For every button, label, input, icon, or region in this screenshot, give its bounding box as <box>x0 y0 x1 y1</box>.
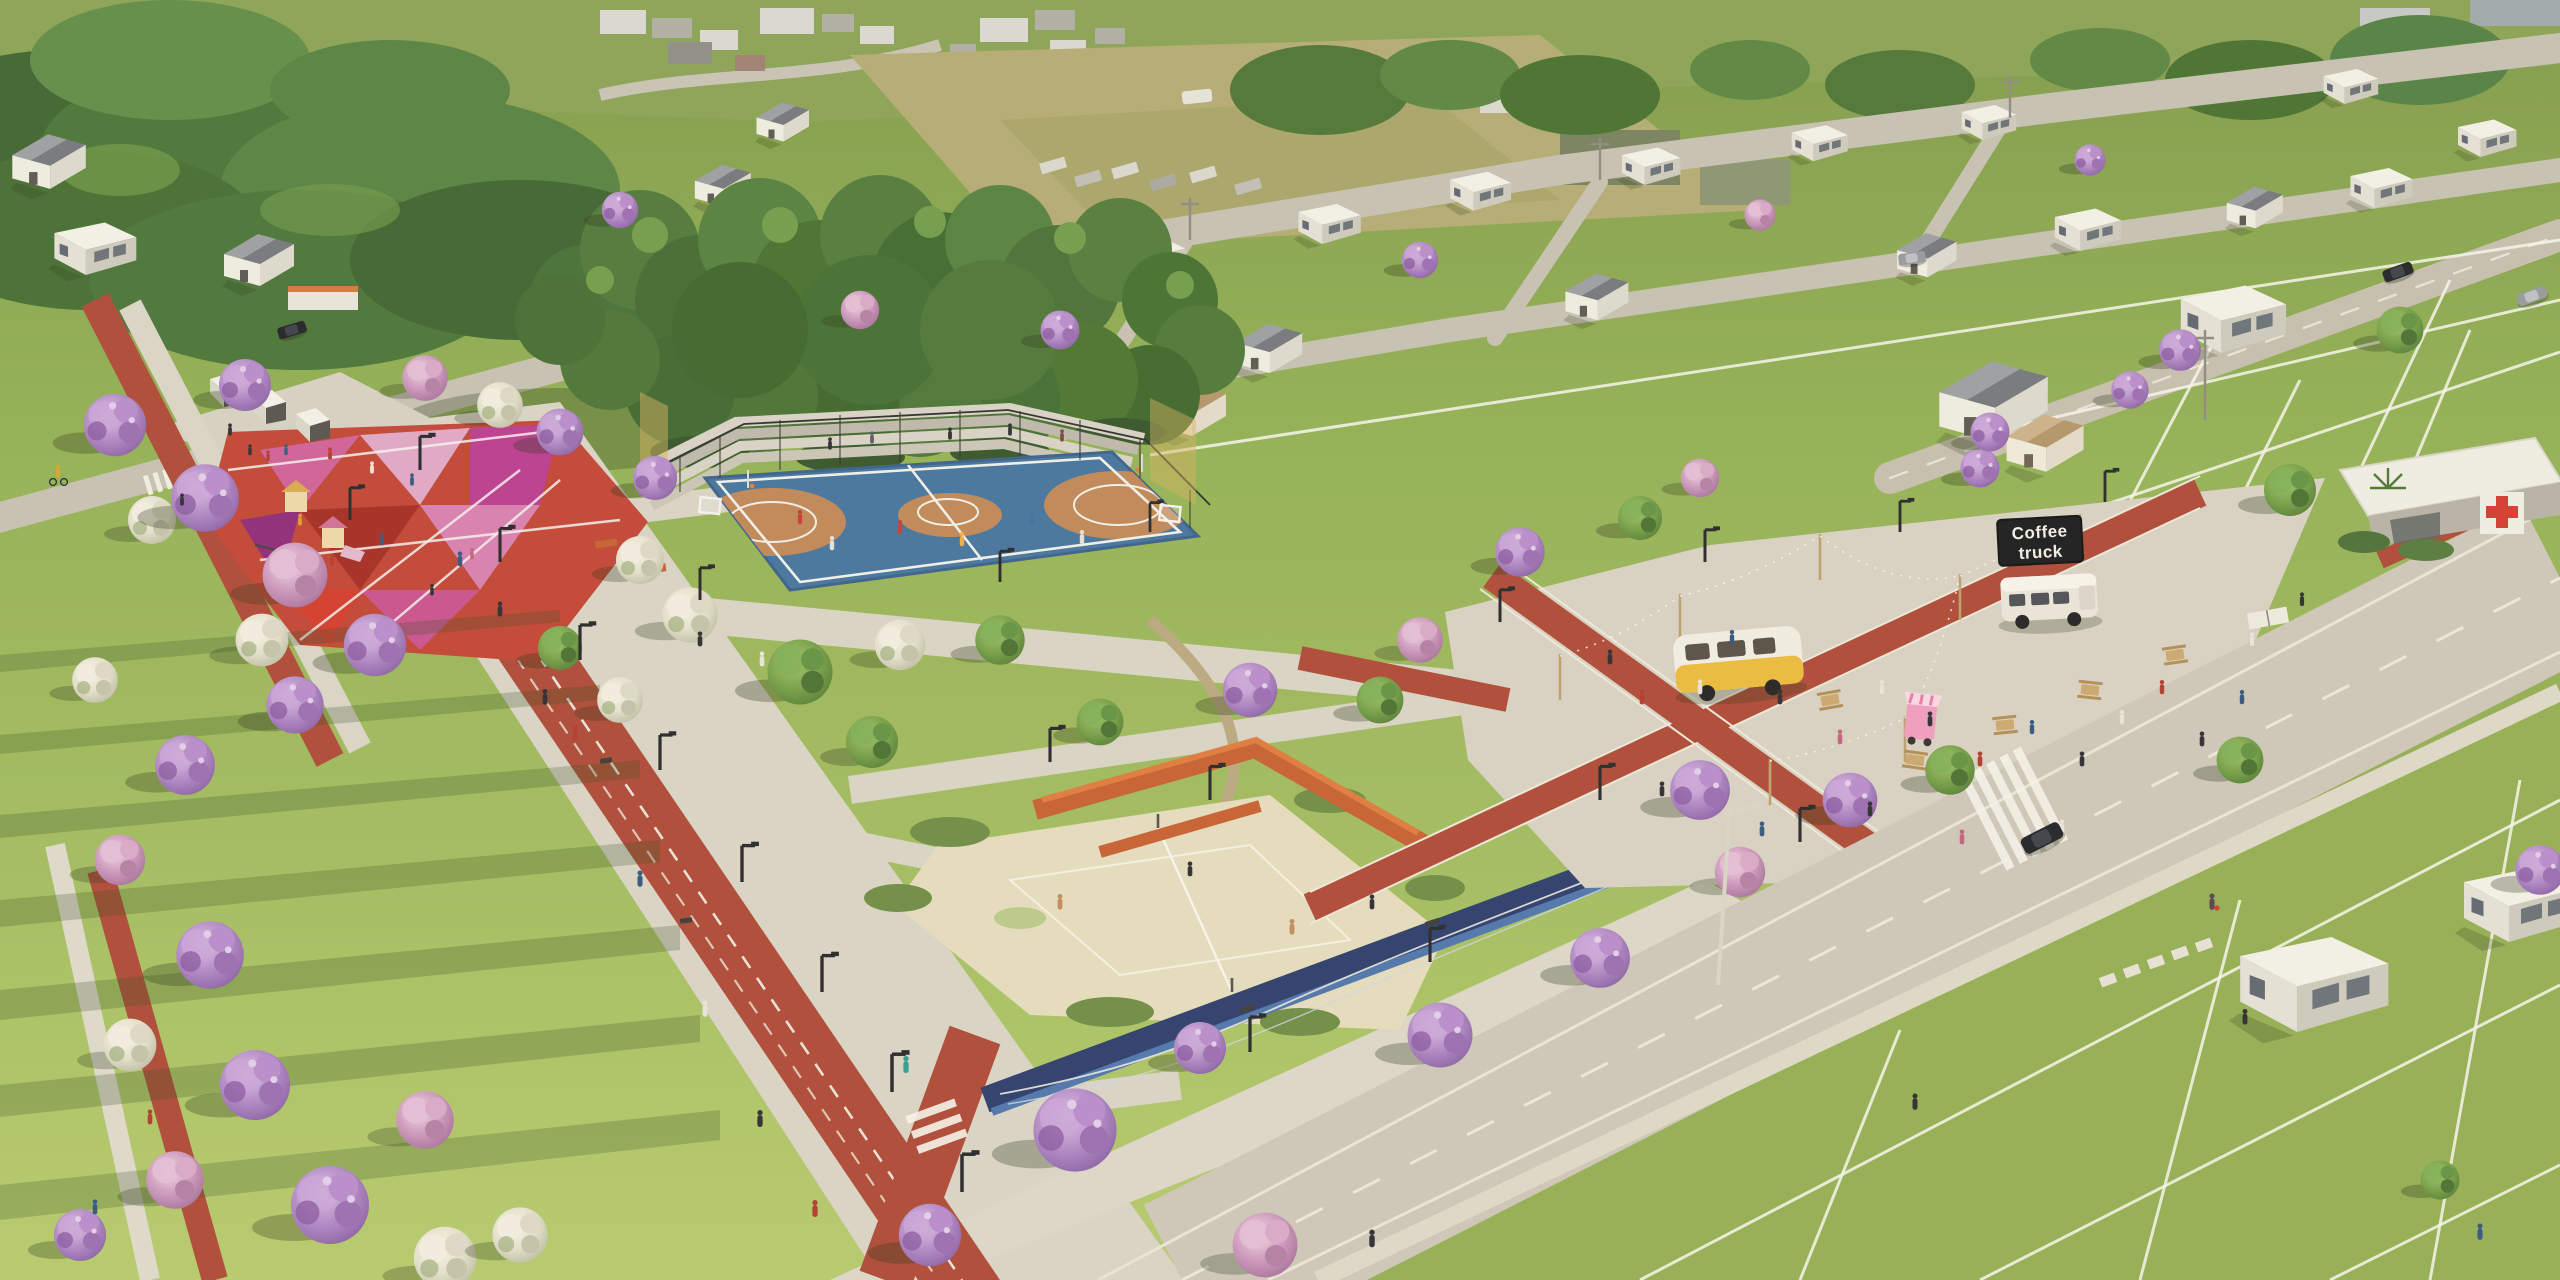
light-wash-overlay <box>0 0 2560 1280</box>
aerial-park-render: Coffee truck <box>0 0 2560 1280</box>
